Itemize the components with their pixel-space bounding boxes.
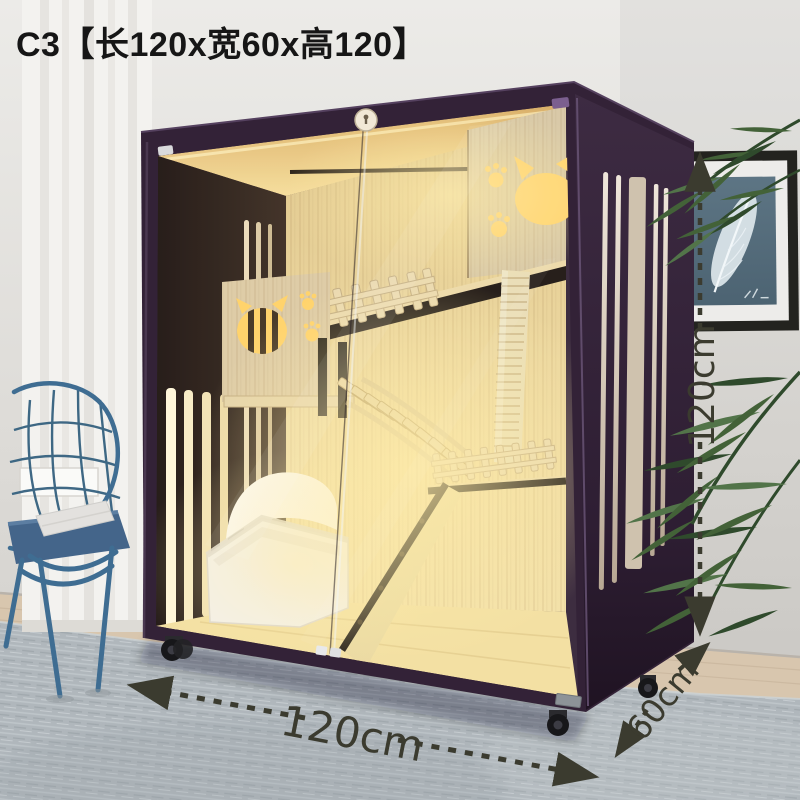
height-dimension-label: 120cm — [682, 324, 723, 448]
hinge-top-right — [551, 97, 569, 109]
product-title: C3【长120x宽60x高120】 — [16, 25, 427, 64]
cat-villa-cabinet — [135, 82, 694, 742]
product-photo-scene: 120cm 120cm 60cm C3【长120x宽60x高120】 — [0, 0, 800, 800]
glass-pane — [156, 104, 578, 698]
caster-front-right — [547, 710, 569, 736]
door-bottom-guide-right — [329, 647, 341, 657]
glass-doors — [156, 97, 578, 698]
hinge-top-left — [158, 145, 174, 156]
door-bottom-guide-left — [315, 645, 327, 655]
